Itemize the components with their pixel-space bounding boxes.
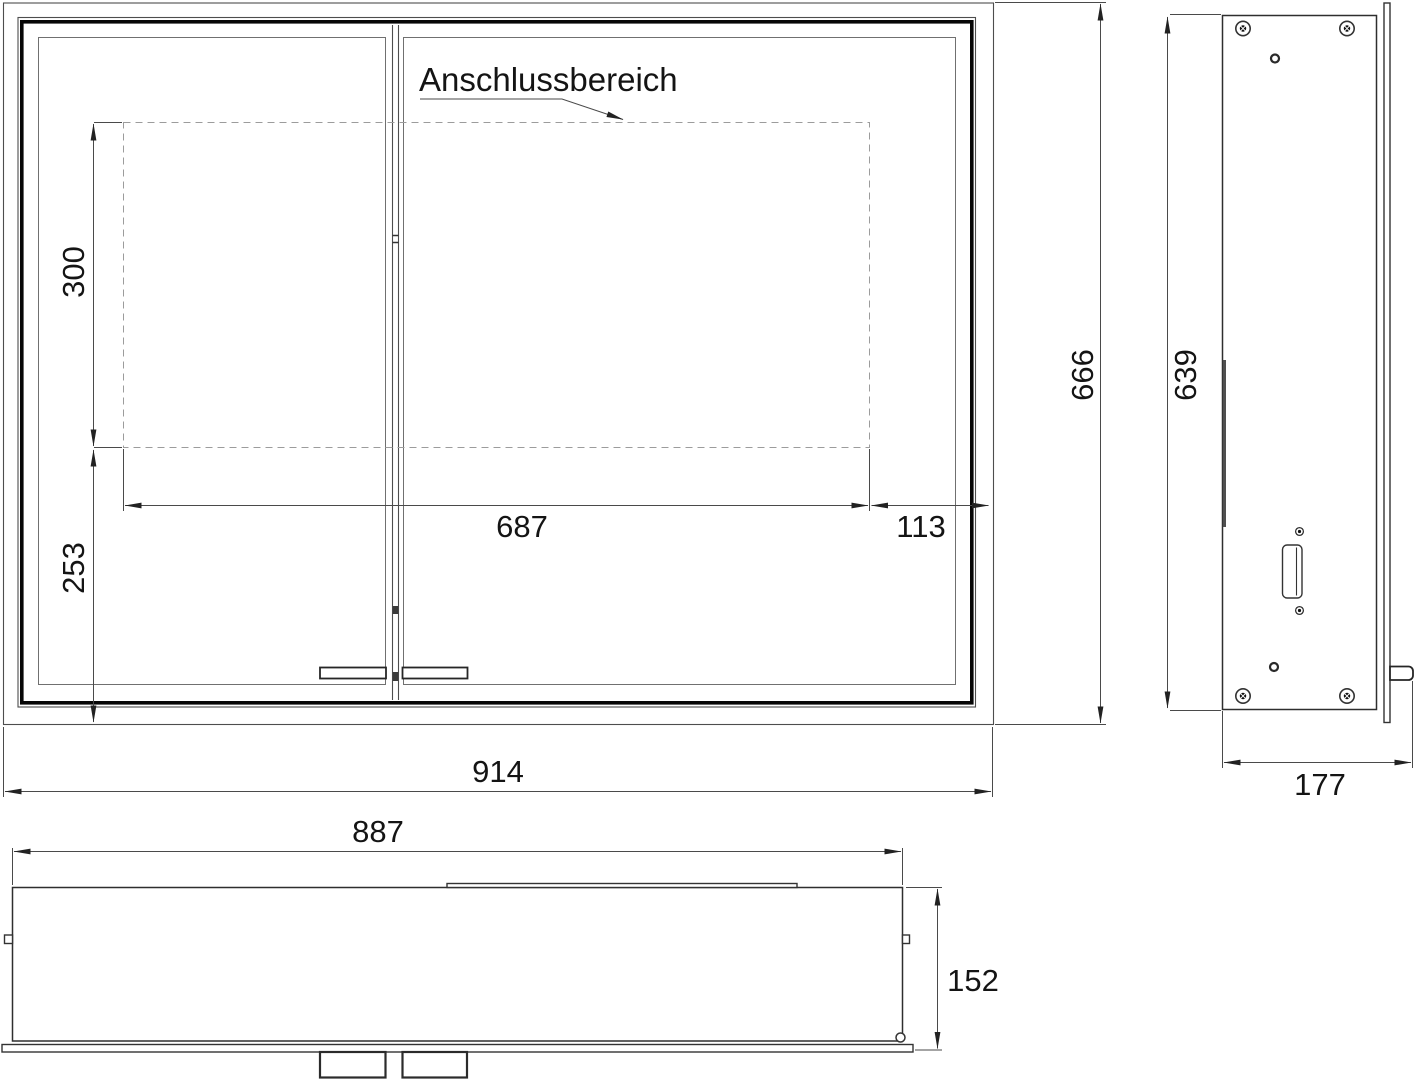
right-door-mirror-inset [404, 38, 956, 685]
dim-label-639: 639 [1168, 349, 1203, 401]
front-outer-frame [4, 3, 994, 725]
left-clip [5, 935, 13, 944]
side-view [1223, 3, 1414, 723]
dim-label-887: 887 [352, 814, 404, 849]
left-door-handle [320, 668, 386, 679]
screw-top-left [1236, 21, 1250, 35]
bottom-body [13, 888, 903, 1042]
side-door-handle [1390, 667, 1413, 681]
dim-label-152: 152 [947, 963, 999, 998]
side-hinge-strip [1223, 360, 1226, 527]
technical-drawing-page: Anschlussbereich 300 253 687 113 914 666 [0, 0, 1415, 1080]
dim-label-300: 300 [56, 246, 91, 298]
left-handle-bottom [320, 1052, 386, 1078]
dim-label-666: 666 [1065, 349, 1100, 401]
mount-hole-top [1271, 55, 1279, 63]
front-dimensions: 300 253 687 113 914 666 [4, 3, 1107, 798]
bottom-door-slab [2, 1045, 913, 1053]
mirror-cabinet-drawing: Anschlussbereich 300 253 687 113 914 666 [0, 0, 1415, 1080]
hinge-pivot [896, 1033, 905, 1042]
side-body [1223, 16, 1377, 710]
dim-label-253: 253 [56, 542, 91, 594]
door-split-catch [393, 606, 399, 614]
door-split-catch [393, 672, 399, 681]
socket-screw-bottom [1296, 607, 1304, 615]
front-view [4, 3, 994, 725]
mount-hole-bottom [1270, 663, 1278, 671]
screw-bottom-left [1236, 689, 1250, 703]
right-handle-bottom [403, 1052, 468, 1078]
connection-cover-plate [447, 884, 797, 888]
connection-area: Anschlussbereich [124, 61, 870, 448]
screw-bottom-right [1340, 689, 1354, 703]
right-clip [903, 935, 910, 944]
dim-label-687: 687 [496, 509, 548, 544]
connection-area-dashed-box [124, 123, 870, 448]
leader-line [420, 99, 623, 120]
front-trim-frame [18, 18, 976, 708]
dim-label-113: 113 [896, 509, 945, 544]
dim-label-914: 914 [472, 754, 524, 789]
front-body-edge [22, 22, 972, 703]
side-door-slab [1384, 3, 1390, 723]
bottom-view [2, 884, 913, 1078]
socket-screw-top [1296, 528, 1304, 536]
dim-label-177: 177 [1294, 767, 1346, 802]
bottom-dimensions: 887 152 [13, 814, 999, 1050]
screw-top-right [1340, 21, 1354, 35]
connection-area-label: Anschlussbereich [419, 61, 678, 98]
internal-socket [1283, 545, 1303, 598]
right-door-handle [403, 668, 468, 679]
